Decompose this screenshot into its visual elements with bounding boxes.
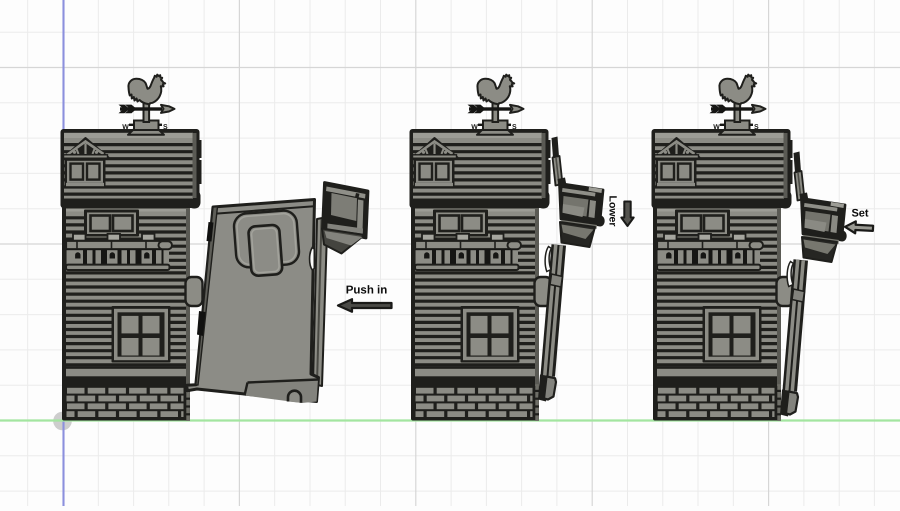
svg-text:Push in: Push in	[346, 285, 388, 297]
svg-text:Lower: Lower	[607, 196, 619, 227]
svg-text:Set: Set	[851, 208, 868, 220]
